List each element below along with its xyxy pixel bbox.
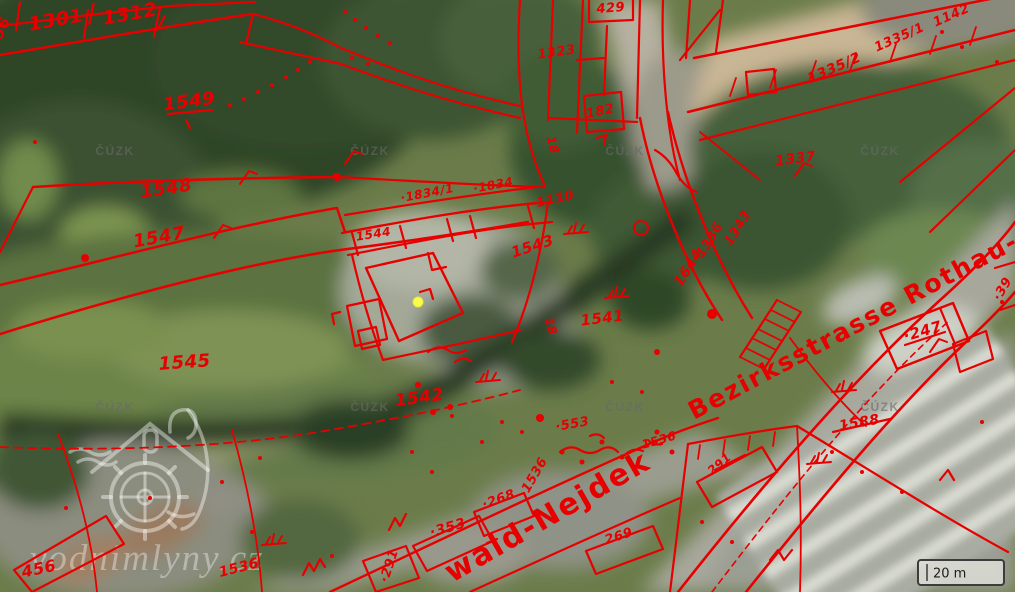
parcel-label-1343: 1343 <box>722 208 755 248</box>
parcel-label-18: 18 <box>544 135 562 156</box>
parcel-label-1110: 1110 <box>535 188 575 211</box>
parcel-label-1544: 1544 <box>355 224 392 243</box>
parcel-label-1301: 1301 <box>27 4 85 35</box>
vodnimlyny-logo: vodnimlyny.cz <box>30 410 265 579</box>
parcel-label-1335-2: 1335/2 <box>805 49 863 87</box>
cuzk-watermark: ČÚZK <box>95 399 134 414</box>
parcel-label-1543: 1543 <box>509 231 556 262</box>
parcel-label-1312: 1312 <box>101 0 159 30</box>
cuzk-watermark: ČÚZK <box>95 143 134 158</box>
cuzk-watermark: ČÚZK <box>860 399 899 414</box>
scale-bar: 20 m <box>918 560 1004 585</box>
parcel-label-39: ·39 <box>990 275 1015 304</box>
cuzk-watermark: ČÚZK <box>350 399 389 414</box>
cuzk-watermark: ČÚZK <box>605 143 644 158</box>
parcel-label-56: 56 <box>0 14 14 41</box>
parcel-label-291: ·291 <box>377 547 402 584</box>
parcel-label-1536: 1536 <box>640 429 678 452</box>
cadastral-overlay-layer: ČÚZK ČÚZK ČÚZK ČÚZK ČÚZK ČÚZK ČÚZK ČÚZK … <box>0 0 1015 592</box>
parcel-label-1335-1: 1335/1 <box>872 20 927 55</box>
parcel-label-268: ·268 <box>480 487 517 513</box>
cuzk-watermark: ČÚZK <box>350 143 389 158</box>
parcel-label-553: ·553 <box>554 414 590 435</box>
map-viewport[interactable]: ČÚZK ČÚZK ČÚZK ČÚZK ČÚZK ČÚZK ČÚZK ČÚZK … <box>0 0 1015 592</box>
parcel-label-291b: 291 <box>705 450 734 478</box>
cuzk-watermark: ČÚZK <box>860 143 899 158</box>
parcel-label-1542: 1542 <box>393 385 445 412</box>
parcel-label-182: 182 <box>585 101 616 122</box>
parcel-label-1588: 1588 <box>838 412 881 435</box>
parcel-label-18: 18 <box>542 316 560 337</box>
parcel-label-1547: 1547 <box>132 223 187 253</box>
scale-bar-label: 20 m <box>933 567 966 582</box>
parcel-label-1548: 1548 <box>139 175 194 203</box>
parcel-label-1545: 1545 <box>158 350 211 375</box>
parcel-label-429: 429 <box>595 0 626 17</box>
location-marker[interactable] <box>413 297 423 307</box>
parcel-label-1541: 1541 <box>580 306 626 329</box>
parcel-label-1323: 1323 <box>537 42 577 62</box>
cuzk-watermark: ČÚZK <box>605 399 644 414</box>
